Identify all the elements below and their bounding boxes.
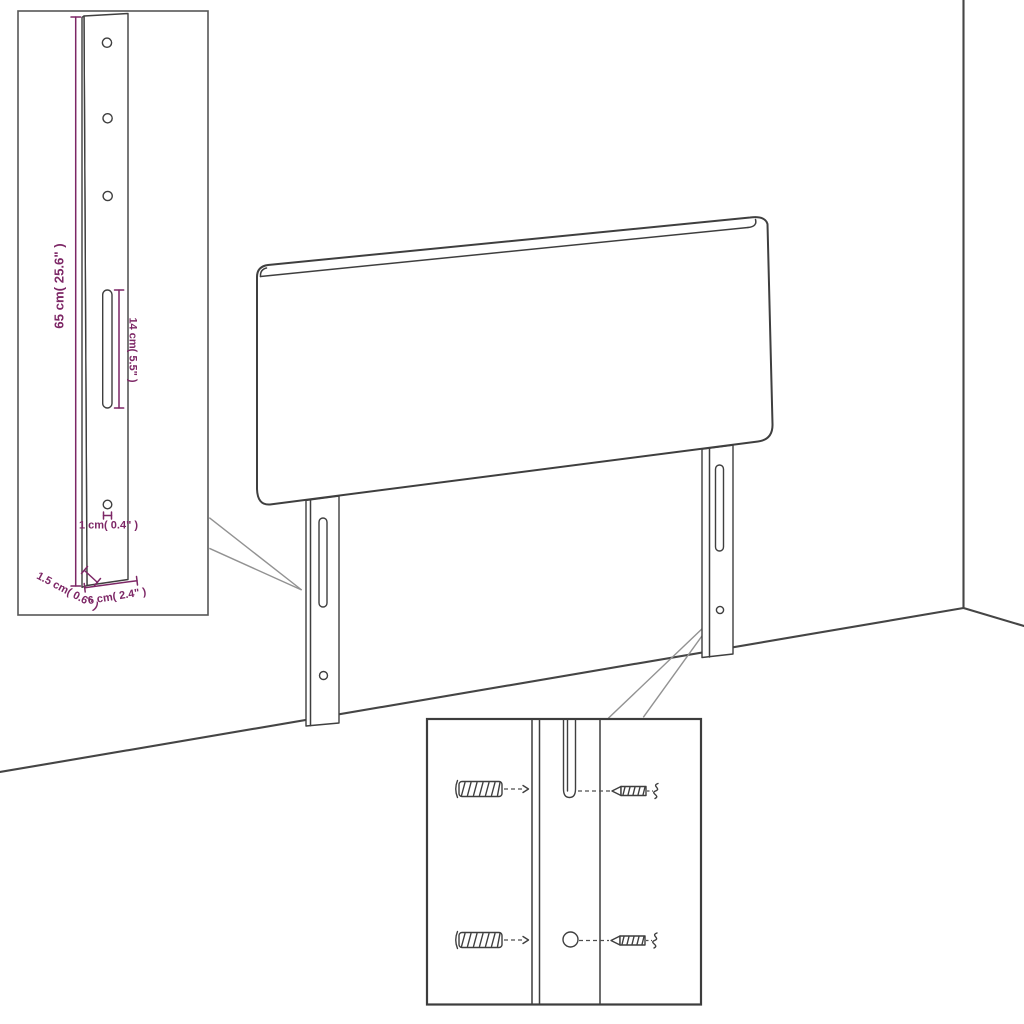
dim-tick xyxy=(84,584,85,593)
left-leg-slot xyxy=(319,518,327,607)
dim-tick xyxy=(137,577,138,586)
right-leg xyxy=(702,445,733,657)
headboard-outline xyxy=(257,217,773,504)
left-leg xyxy=(306,496,339,726)
callout-wedge-left xyxy=(209,518,301,590)
mounting-detail-inset xyxy=(427,719,701,1005)
leg-detail-inset: 65 cm( 25.6" ) 14 cm( 5.5" ) 1 cm( 0.4" … xyxy=(18,11,208,615)
assembly-diagram: 65 cm( 25.6" ) 14 cm( 5.5" ) 1 cm( 0.4" … xyxy=(0,0,1024,1024)
right-leg-slot xyxy=(716,465,724,551)
right-leg-hole xyxy=(716,606,723,613)
inset-leg-hole-2 xyxy=(103,114,112,123)
inset-leg-hole-3 xyxy=(103,191,112,200)
dim-label-leg-height: 65 cm( 25.6" ) xyxy=(52,243,67,328)
floor-line-right xyxy=(964,608,1024,626)
headboard-panel xyxy=(257,217,773,504)
left-leg-hole xyxy=(320,672,328,680)
diagram-svg: 65 cm( 25.6" ) 14 cm( 5.5" ) 1 cm( 0.4" … xyxy=(0,0,1024,1024)
inset-leg-slot xyxy=(103,290,112,408)
inset-leg-hole-1 xyxy=(102,38,111,47)
inset-leg-small-hole xyxy=(103,500,112,509)
dim-label-hole-size: 1 cm( 0.4" ) xyxy=(79,520,138,532)
dim-label-slot-length: 14 cm( 5.5" ) xyxy=(127,317,139,382)
